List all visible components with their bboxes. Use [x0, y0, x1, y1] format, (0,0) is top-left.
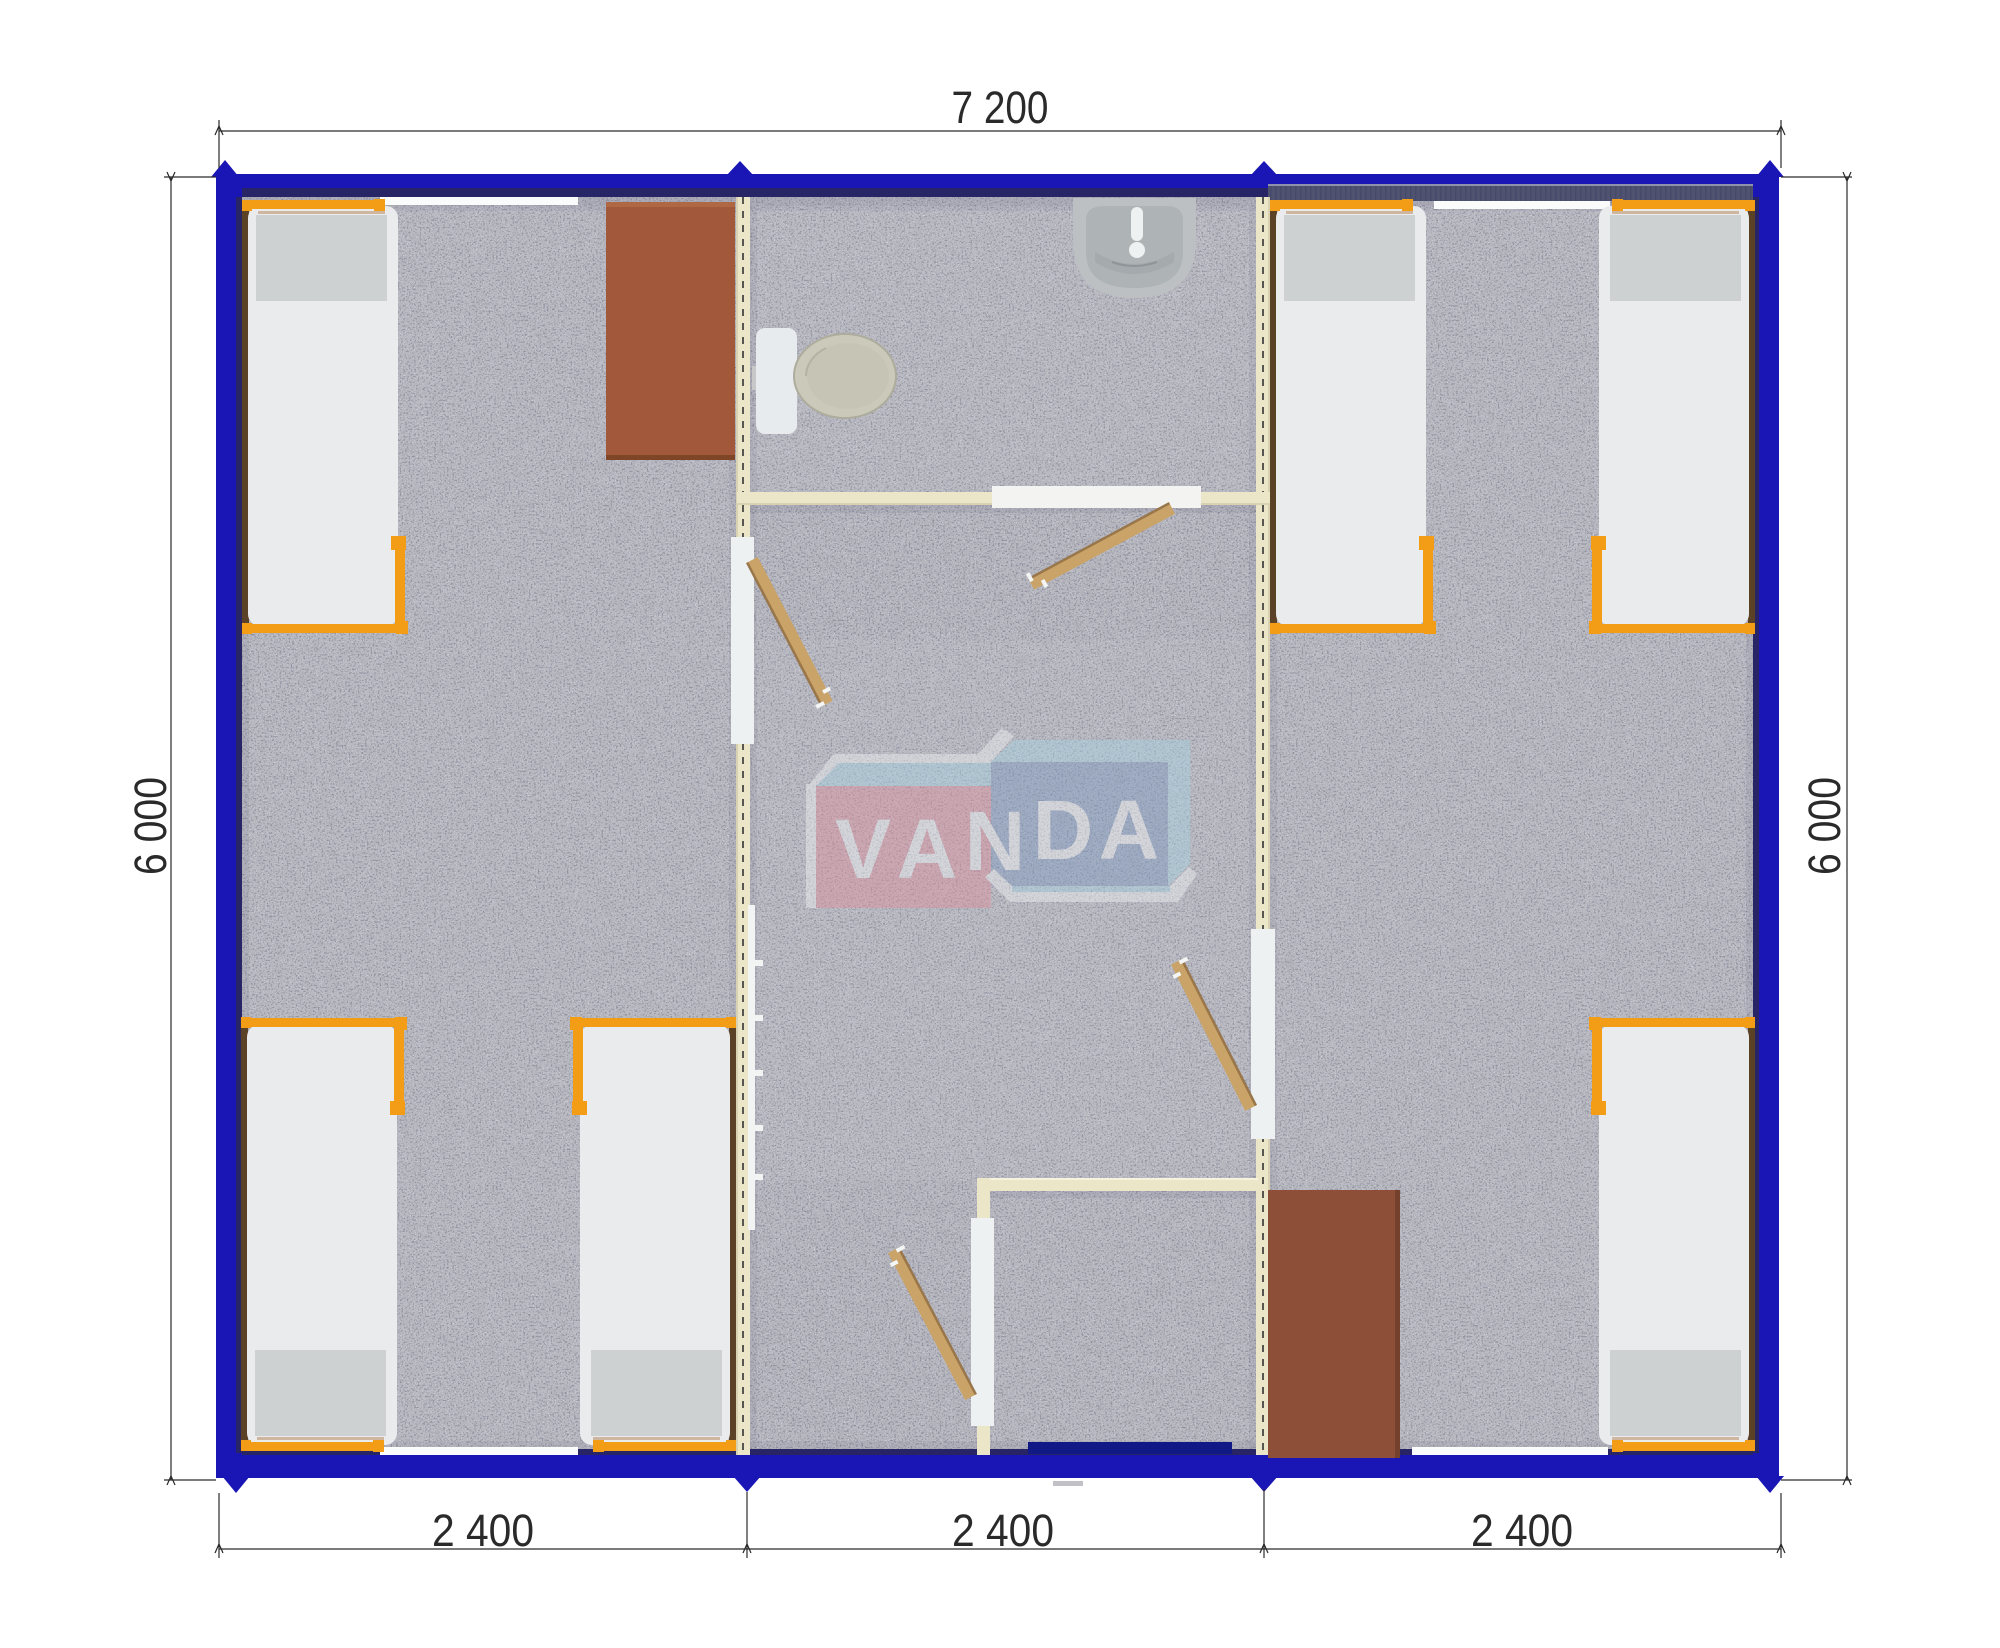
- svg-text:D: D: [1033, 783, 1094, 877]
- svg-text:2 400: 2 400: [432, 1505, 534, 1556]
- svg-text:7 200: 7 200: [952, 82, 1049, 133]
- svg-text:2 400: 2 400: [1471, 1505, 1573, 1556]
- svg-text:6 000: 6 000: [125, 777, 176, 875]
- svg-text:2 400: 2 400: [952, 1505, 1054, 1556]
- svg-text:6 000: 6 000: [1799, 777, 1850, 875]
- svg-text:V: V: [835, 802, 891, 896]
- svg-text:A: A: [1099, 783, 1160, 877]
- svg-text:A: A: [897, 802, 958, 896]
- svg-text:N: N: [965, 794, 1026, 888]
